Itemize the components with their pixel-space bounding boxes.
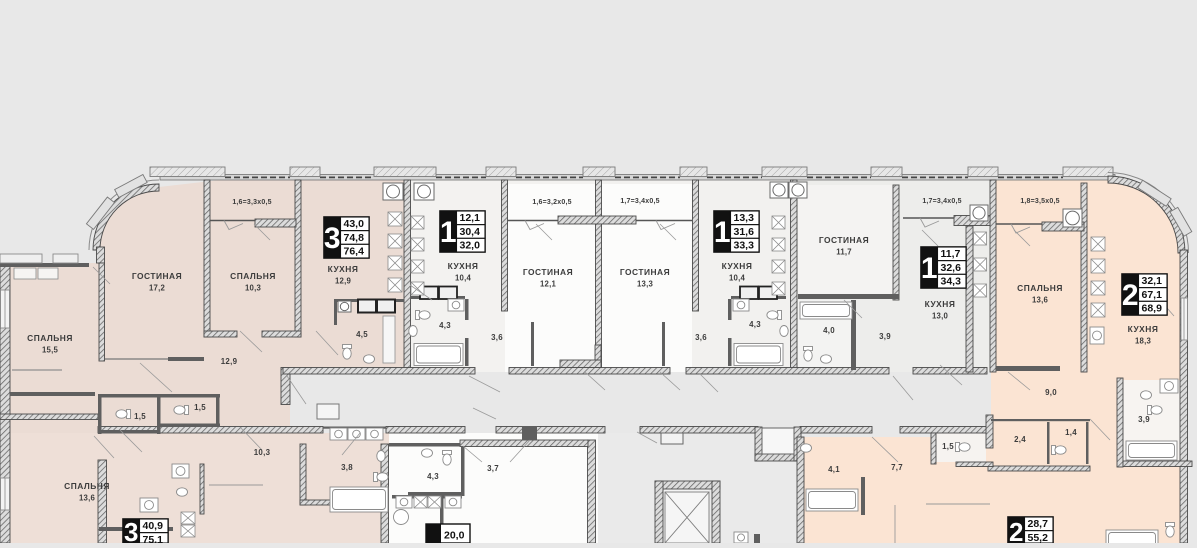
svg-text:10,4: 10,4 [729,274,745,283]
svg-text:1,6=3,3х0,5: 1,6=3,3х0,5 [232,199,271,206]
svg-text:12,9: 12,9 [221,357,238,366]
svg-text:43,0: 43,0 [344,218,365,230]
svg-text:СПАЛЬНЯ: СПАЛЬНЯ [64,481,110,491]
svg-text:10,3: 10,3 [254,448,271,457]
svg-text:3: 3 [124,517,138,543]
svg-text:СПАЛЬНЯ: СПАЛЬНЯ [27,333,73,343]
svg-text:10,4: 10,4 [455,274,471,283]
svg-text:СПАЛЬНЯ: СПАЛЬНЯ [1017,283,1063,293]
svg-text:13,3: 13,3 [637,280,653,289]
svg-text:11,7: 11,7 [836,248,852,257]
svg-text:3: 3 [324,222,341,255]
svg-text:33,3: 33,3 [734,240,755,252]
svg-text:КУХНЯ: КУХНЯ [448,261,479,271]
svg-text:КУХНЯ: КУХНЯ [722,261,753,271]
svg-text:31,6: 31,6 [734,226,755,238]
svg-text:4,3: 4,3 [439,321,451,330]
svg-text:28,7: 28,7 [1028,518,1049,530]
svg-text:13,6: 13,6 [79,494,95,503]
svg-text:1,7=3,4х0,5: 1,7=3,4х0,5 [922,198,961,205]
svg-text:2: 2 [1009,517,1023,543]
svg-text:3,9: 3,9 [879,332,891,341]
svg-text:1,5: 1,5 [194,403,206,412]
svg-text:3,8: 3,8 [341,463,353,472]
svg-text:4,3: 4,3 [749,320,761,329]
svg-text:11,7: 11,7 [941,248,961,260]
svg-text:1,5: 1,5 [134,412,146,421]
svg-text:40,9: 40,9 [143,520,164,532]
svg-text:20,0: 20,0 [444,530,465,542]
svg-text:СПАЛЬНЯ: СПАЛЬНЯ [230,271,276,281]
svg-text:1,5: 1,5 [942,442,954,451]
svg-text:32,1: 32,1 [1142,275,1163,287]
svg-text:1,4: 1,4 [1065,428,1077,437]
svg-text:74,8: 74,8 [344,232,365,244]
svg-text:3,6: 3,6 [695,333,707,342]
svg-text:1,6=3,2х0,5: 1,6=3,2х0,5 [532,199,571,206]
svg-text:13,0: 13,0 [932,312,948,321]
svg-text:1: 1 [440,216,457,249]
svg-text:10,3: 10,3 [245,284,261,293]
svg-text:75,1: 75,1 [143,534,164,543]
svg-text:12,1: 12,1 [540,280,556,289]
svg-text:76,4: 76,4 [344,246,365,258]
svg-text:2: 2 [1122,279,1139,312]
svg-text:32,0: 32,0 [460,240,481,252]
svg-text:1: 1 [714,216,731,249]
svg-text:4,1: 4,1 [828,465,840,474]
svg-text:1: 1 [921,252,938,285]
svg-text:12,9: 12,9 [335,277,351,286]
svg-text:68,9: 68,9 [1142,303,1163,315]
svg-text:67,1: 67,1 [1142,289,1163,301]
svg-text:18,3: 18,3 [1135,337,1151,346]
svg-text:34,3: 34,3 [941,276,962,288]
svg-text:32,6: 32,6 [941,262,962,274]
svg-text:9,0: 9,0 [1045,388,1057,397]
svg-text:КУХНЯ: КУХНЯ [925,299,956,309]
svg-text:КУХНЯ: КУХНЯ [1128,324,1159,334]
svg-text:1,7=3,4х0,5: 1,7=3,4х0,5 [620,198,659,205]
svg-text:55,2: 55,2 [1028,532,1049,543]
svg-text:ГОСТИНАЯ: ГОСТИНАЯ [523,267,573,277]
svg-text:ГОСТИНАЯ: ГОСТИНАЯ [620,267,670,277]
svg-text:15,5: 15,5 [42,346,58,355]
svg-text:3,9: 3,9 [1138,415,1150,424]
svg-text:3,6: 3,6 [491,333,503,342]
svg-text:13,6: 13,6 [1032,296,1048,305]
svg-text:4,0: 4,0 [823,326,835,335]
svg-text:ГОСТИНАЯ: ГОСТИНАЯ [819,235,869,245]
svg-text:4,5: 4,5 [356,330,368,339]
svg-text:17,2: 17,2 [149,284,165,293]
svg-text:КУХНЯ: КУХНЯ [328,264,359,274]
svg-text:7,7: 7,7 [891,463,903,472]
svg-text:12,1: 12,1 [460,212,481,224]
svg-text:2,4: 2,4 [1014,435,1026,444]
svg-text:3,7: 3,7 [487,464,499,473]
svg-text:1,8=3,5х0,5: 1,8=3,5х0,5 [1020,198,1059,205]
svg-text:4,3: 4,3 [427,472,439,481]
svg-text:13,3: 13,3 [734,212,755,224]
svg-text:ГОСТИНАЯ: ГОСТИНАЯ [132,271,182,281]
svg-text:30,4: 30,4 [460,226,481,238]
